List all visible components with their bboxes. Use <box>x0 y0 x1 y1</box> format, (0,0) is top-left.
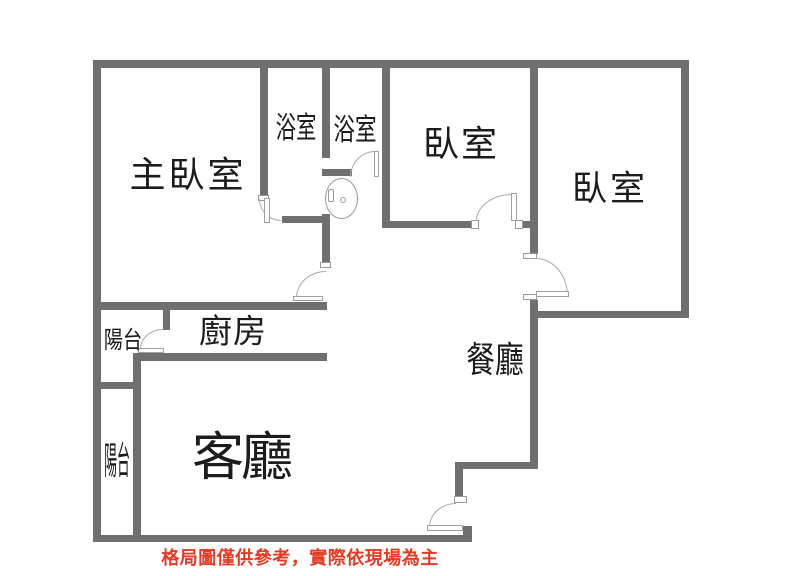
room-label-dining-room: 餐廳 <box>466 343 524 379</box>
wall-outer-bottom <box>93 535 472 542</box>
faucet-icon <box>328 189 334 202</box>
balcony1-door-arc <box>140 329 163 349</box>
bedroom1-door-leaf <box>511 193 517 221</box>
wall-balcony1-south <box>93 382 141 389</box>
wall-bedroom1-south-right <box>523 221 536 228</box>
wall-vanity-stub <box>322 169 352 176</box>
bathroom2-door-arc <box>350 151 375 177</box>
entry-door-arc <box>429 503 456 527</box>
wall-outer-left <box>93 60 101 542</box>
entry-door-leaf <box>427 525 463 531</box>
wall-bedroom1-south-left <box>382 221 473 228</box>
wall-bedroom2-south <box>536 311 689 318</box>
room-label-kitchen: 廚房 <box>199 315 267 348</box>
room-label-bathroom-2: 浴室 <box>333 116 376 146</box>
wall-dining-south <box>455 462 538 469</box>
room-label-bedroom-1: 臥室 <box>423 127 499 163</box>
corridor-door-arc <box>296 271 326 298</box>
master-door-leaf <box>264 198 270 223</box>
room-label-balcony-2: 陽台 <box>104 442 130 480</box>
room-label-master-bedroom: 主臥室 <box>129 158 246 194</box>
faucet-knob-icon <box>340 197 346 203</box>
wall-master-east <box>260 60 268 198</box>
jamb-bedroom1-door-east <box>515 220 523 229</box>
jamb-corridor-door <box>320 262 331 268</box>
jamb-entry-door <box>454 496 467 503</box>
jamb-bedroom2-door-north <box>523 253 537 259</box>
wall-kitchen-south <box>133 353 327 361</box>
wall-bath-divider <box>322 60 330 158</box>
jamb-bedroom1-door-west <box>471 220 479 229</box>
room-label-bathroom-1: 浴室 <box>276 114 317 144</box>
wall-kitchen-north <box>93 302 327 310</box>
wall-outer-right <box>681 60 689 318</box>
bedroom2-door-leaf <box>536 291 569 297</box>
room-label-living-room: 客廳 <box>192 432 290 484</box>
wall-entry-west <box>455 462 463 498</box>
floorplan-canvas: 主臥室 浴室 浴室 臥室 臥室 陽台 廚房 陽台 客廳 餐廳 格局圖僅供參考，實… <box>0 0 800 576</box>
wall-under-sink <box>322 214 330 264</box>
wall-balcony1-stub <box>163 310 170 330</box>
bedroom1-door-arc <box>476 194 512 221</box>
room-label-bedroom-2: 臥室 <box>572 173 648 208</box>
wall-bath2-east <box>382 60 390 223</box>
bathroom2-door-leaf <box>374 151 379 177</box>
master-door-arc <box>259 199 281 221</box>
wall-entry-stub <box>463 526 472 542</box>
jamb-bedroom2-door-south <box>523 294 537 300</box>
wall-outer-top <box>93 60 689 68</box>
room-label-balcony-1: 陽台 <box>104 328 142 352</box>
wall-east-divider-lower <box>530 300 538 465</box>
disclaimer-text: 格局圖僅供參考，實際依現場為主 <box>161 544 439 570</box>
corridor-door-leaf <box>293 296 323 301</box>
